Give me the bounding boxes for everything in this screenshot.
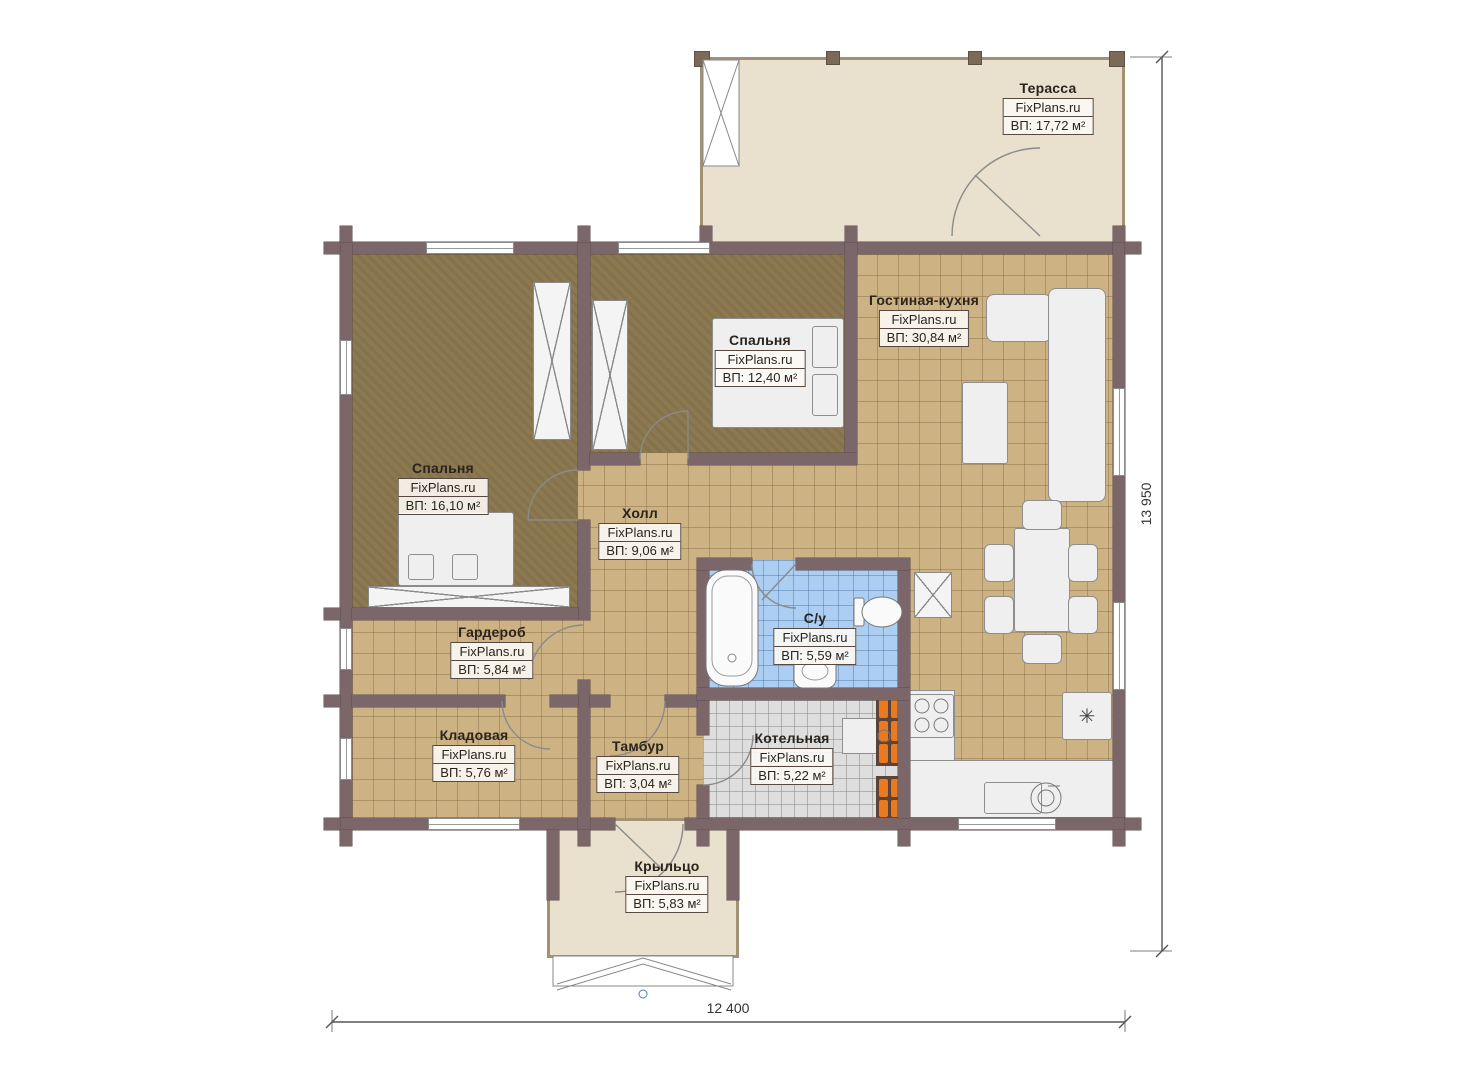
wall [665,695,697,707]
room-label-vestibule: Тамбур FixPlans.ru ВП: 3,04 м² [596,738,679,793]
log-end [1125,818,1141,830]
log-end [324,242,340,254]
brand-label: FixPlans.ru [599,524,680,541]
wall [590,453,640,465]
wall [685,818,1125,830]
log-end [578,830,590,846]
chair [1068,544,1098,582]
room-name: Котельная [750,730,833,746]
room-name: С/у [773,610,856,626]
log-end [340,830,352,846]
room-label-boiler: Котельная FixPlans.ru ВП: 5,22 м² [750,730,833,785]
area-label: ВП: 5,59 м² [774,646,855,664]
wall [578,520,590,620]
wall [845,242,857,465]
log-end [1125,242,1141,254]
room-tag: FixPlans.ru ВП: 30,84 м² [879,310,970,347]
dimension-tick [1156,945,1168,957]
window [340,738,352,780]
log-end [1113,830,1125,846]
pillow [812,374,838,416]
sofa-section [986,294,1052,342]
room-label-wardrobe: Гардероб FixPlans.ru ВП: 5,84 м² [450,624,533,679]
log-end [324,818,340,830]
chair [984,596,1014,634]
dimension-tick [1156,51,1168,63]
floor-plan: ✳ [0,0,1474,1080]
room-label-bathroom: С/у FixPlans.ru ВП: 5,59 м² [773,610,856,665]
area-label: ВП: 5,76 м² [433,763,514,781]
brand-label: FixPlans.ru [597,757,678,774]
room-label-hall: Холл FixPlans.ru ВП: 9,06 м² [598,505,681,560]
closet-shaft [914,572,952,618]
room-name: Тамбур [596,738,679,754]
window [340,628,352,670]
room-tag: FixPlans.ru ВП: 17,72 м² [1003,98,1094,135]
wall [688,453,857,465]
log-end [700,226,712,242]
room-name: Терасса [1003,80,1094,96]
brand-label: FixPlans.ru [880,311,969,328]
window [618,242,710,254]
window [428,818,520,830]
porch-steps [553,956,733,998]
wall [796,558,910,570]
window [426,242,514,254]
terrace-post [968,51,982,65]
room-name: Гостиная-кухня [869,292,979,308]
log-end [898,830,910,846]
brand-label: FixPlans.ru [774,629,855,646]
log-end [578,226,590,242]
area-label: ВП: 3,04 м² [597,774,678,792]
room-tag: FixPlans.ru ВП: 5,84 м² [450,642,533,679]
brand-label: FixPlans.ru [716,351,805,368]
log-end [324,695,340,707]
room-name: Кладовая [432,727,515,743]
log-end [845,226,857,242]
wall [697,785,709,818]
room-label-porch: Крыльцо FixPlans.ru ВП: 5,83 м² [625,858,708,913]
room-tag: FixPlans.ru ВП: 3,04 м² [596,756,679,793]
area-label: ВП: 17,72 м² [1004,116,1093,134]
wall [352,695,505,707]
stove [908,694,954,738]
log-end [324,608,340,620]
terrace-post [826,51,840,65]
dimension-width-label: 12 400 [707,1000,750,1016]
terrace-post [1109,51,1125,67]
room-name: Гардероб [450,624,533,640]
fridge: ✳ [1062,692,1112,740]
wall [697,570,709,735]
wall [550,695,578,707]
room-name: Спальня [715,332,806,348]
wall [352,608,578,620]
area-label: ВП: 30,84 м² [880,328,969,346]
room-tag: FixPlans.ru ВП: 5,59 м² [773,628,856,665]
wall [578,242,590,470]
log-end [697,830,709,846]
wardrobe-closet [592,300,628,450]
room-label-bedroom-top: Спальня FixPlans.ru ВП: 12,40 м² [715,332,806,387]
terrace-post [694,51,710,67]
area-label: ВП: 12,40 м² [716,368,805,386]
brand-label: FixPlans.ru [433,746,514,763]
brand-label: FixPlans.ru [451,643,532,660]
area-label: ВП: 16,10 м² [399,496,488,514]
window [1113,602,1125,690]
room-label-terrace: Терасса FixPlans.ru ВП: 17,72 м² [1003,80,1094,135]
dining-table [1014,528,1070,632]
room-tag: FixPlans.ru ВП: 5,76 м² [432,745,515,782]
area-label: ВП: 9,06 м² [599,541,680,559]
brand-label: FixPlans.ru [626,877,707,894]
brand-label: FixPlans.ru [399,479,488,496]
pillow [812,326,838,368]
room-label-storage: Кладовая FixPlans.ru ВП: 5,76 м² [432,727,515,782]
brand-label: FixPlans.ru [1004,99,1093,116]
wall [590,695,610,707]
room-tag: FixPlans.ru ВП: 16,10 м² [398,478,489,515]
wall [547,830,559,900]
room-name: Спальня [398,460,489,476]
dishwasher [984,782,1042,814]
room-label-living-kitchen: Гостиная-кухня FixPlans.ru ВП: 30,84 м² [869,292,979,347]
area-label: ВП: 5,83 м² [626,894,707,912]
room-name: Крыльцо [625,858,708,874]
wall [697,688,910,700]
dimension-tick [326,1016,338,1028]
area-label: ВП: 5,22 м² [751,766,832,784]
room-label-bedroom-left: Спальня FixPlans.ru ВП: 16,10 м² [398,460,489,515]
wall [578,680,590,830]
sofa-section [1048,288,1106,502]
room-tag: FixPlans.ru ВП: 12,40 м² [715,350,806,387]
brand-label: FixPlans.ru [751,749,832,766]
wall [697,558,752,570]
chair [1068,596,1098,634]
chair [1022,634,1062,664]
wall [727,830,739,900]
log-end [340,226,352,242]
wardrobe-closet [533,282,571,440]
log-end [1113,226,1125,242]
dimension-height-label: 13 950 [1138,483,1154,526]
room-tag: FixPlans.ru ВП: 5,22 м² [750,748,833,785]
chair [1022,500,1062,530]
room-name: Холл [598,505,681,521]
fridge-icon: ✳ [1079,704,1096,729]
pillow [408,554,434,580]
area-label: ВП: 5,84 м² [451,660,532,678]
dimension-tick [1119,1016,1131,1028]
wall [1113,242,1125,830]
room-tag: FixPlans.ru ВП: 5,83 м² [625,876,708,913]
window [958,818,1056,830]
wardrobe-closet [368,586,570,608]
pillow [452,554,478,580]
room-tag: FixPlans.ru ВП: 9,06 м² [598,523,681,560]
coffee-table [962,382,1008,464]
chair [984,544,1014,582]
window [340,340,352,395]
window [1113,388,1125,476]
